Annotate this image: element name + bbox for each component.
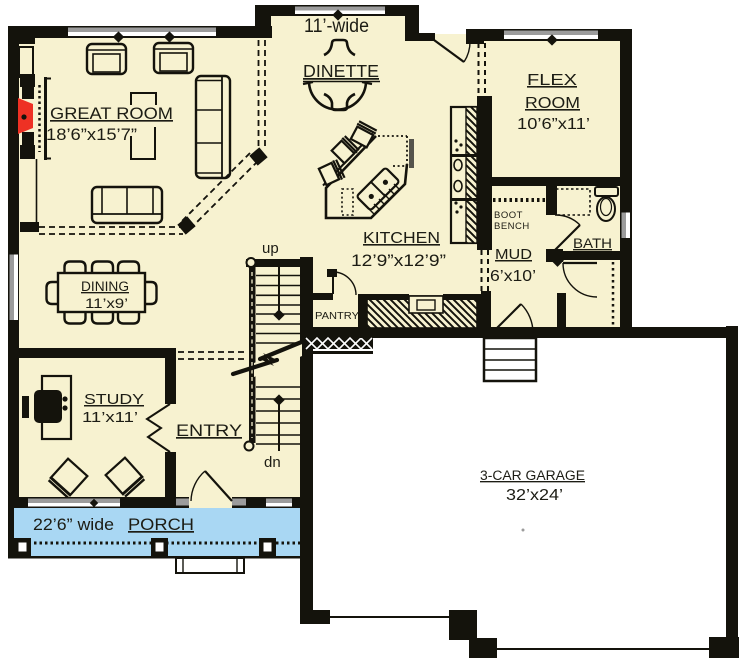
svg-text:up: up [262, 240, 279, 257]
svg-text:BATH: BATH [573, 235, 612, 251]
svg-text:3-CAR GARAGE: 3-CAR GARAGE [480, 468, 585, 483]
svg-text:BENCH: BENCH [494, 221, 530, 232]
svg-text:10’6”x11’: 10’6”x11’ [517, 116, 590, 133]
svg-text:BOOT: BOOT [494, 210, 523, 221]
svg-text:DINETTE: DINETTE [303, 61, 379, 81]
svg-text:PORCH: PORCH [128, 515, 194, 534]
svg-text:6’x10’: 6’x10’ [490, 268, 536, 285]
svg-text:ROOM: ROOM [525, 95, 580, 112]
svg-text:12’9”x12’9”: 12’9”x12’9” [351, 251, 446, 270]
svg-text:MUD: MUD [495, 246, 532, 263]
svg-text:11’x11’: 11’x11’ [82, 409, 138, 426]
svg-text:DINING: DINING [81, 279, 129, 294]
svg-text:ENTRY: ENTRY [176, 421, 242, 440]
svg-text:dn: dn [264, 454, 281, 471]
svg-text:11’-wide: 11’-wide [304, 16, 369, 37]
svg-text:18’6”x15’7”: 18’6”x15’7” [46, 125, 137, 144]
svg-text:PANTRY: PANTRY [315, 310, 359, 322]
svg-text:11’x9’: 11’x9’ [85, 295, 128, 311]
svg-text:KITCHEN: KITCHEN [363, 230, 440, 247]
svg-text:FLEX: FLEX [527, 72, 577, 89]
svg-text:GREAT ROOM: GREAT ROOM [50, 105, 173, 123]
svg-text:STUDY: STUDY [84, 391, 144, 408]
svg-text:22’6” wide: 22’6” wide [33, 515, 114, 534]
svg-text:32’x24’: 32’x24’ [506, 487, 563, 504]
